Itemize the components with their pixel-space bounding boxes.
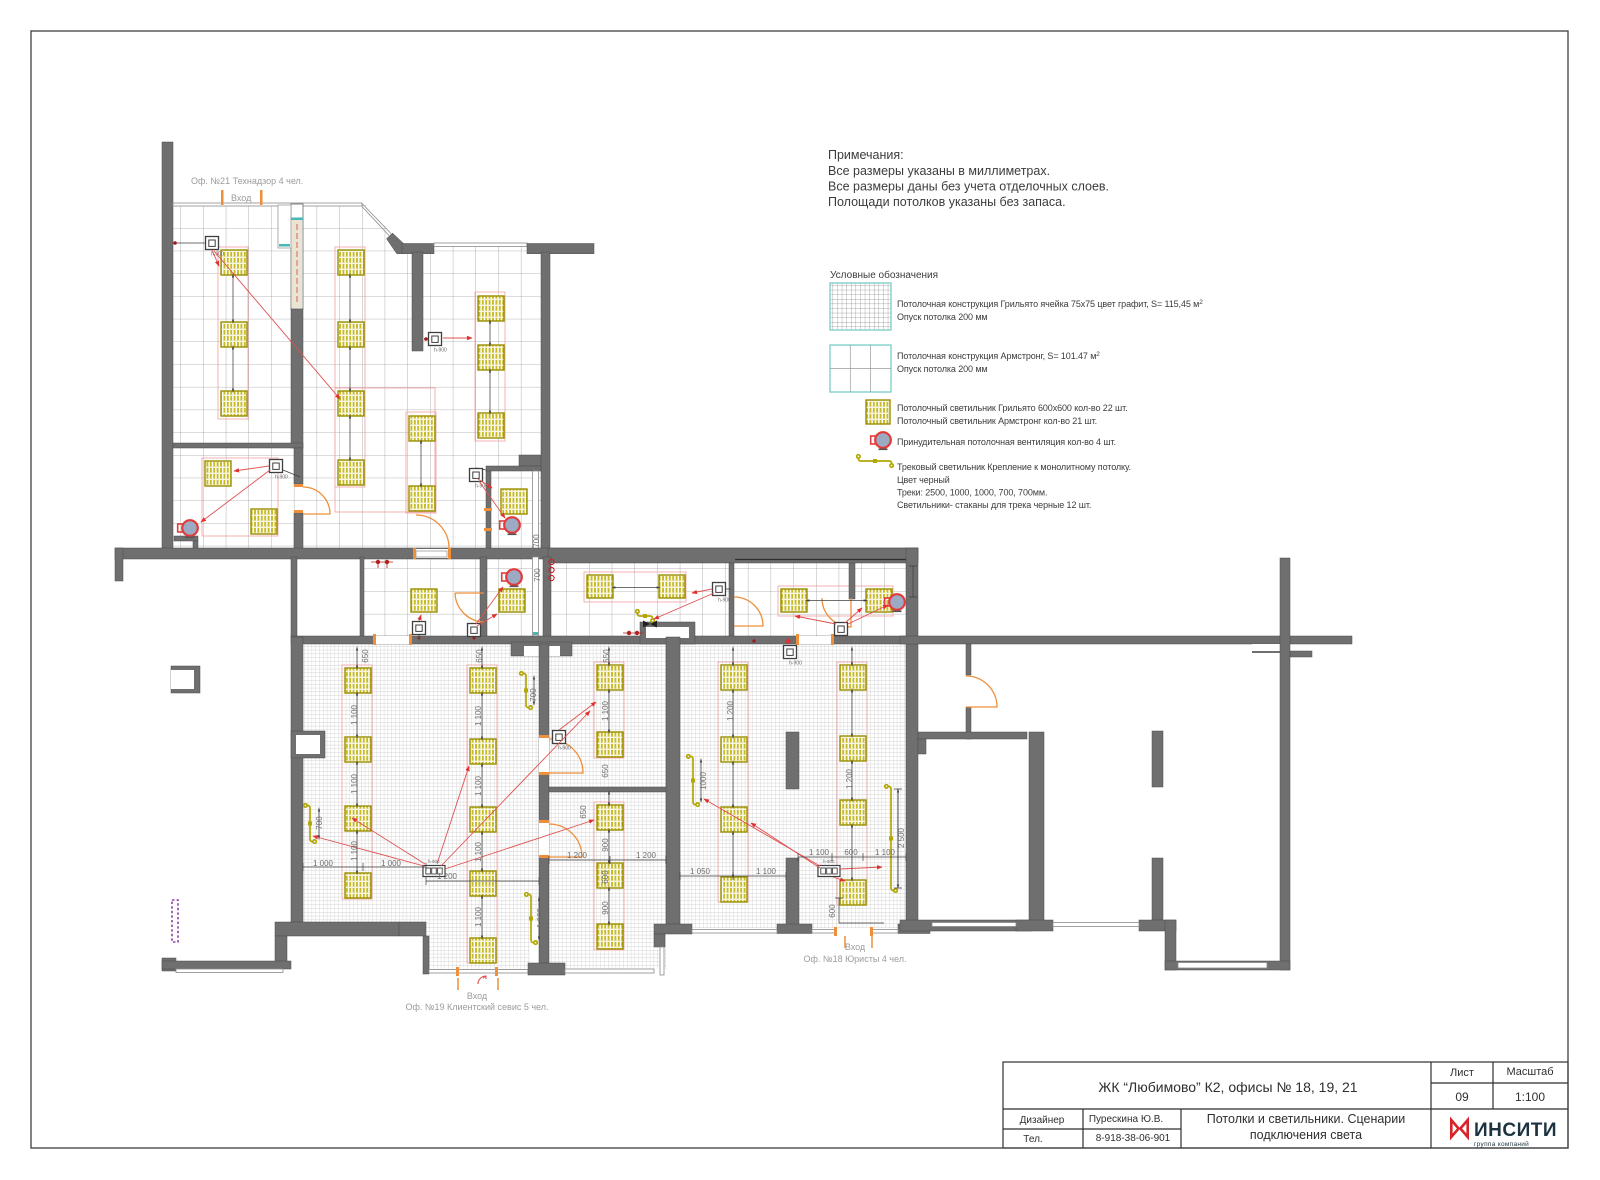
svg-text:900: 900 xyxy=(601,838,610,852)
svg-text:1 100: 1 100 xyxy=(350,840,359,861)
svg-text:1 100: 1 100 xyxy=(350,704,359,725)
svg-text:Принудительная потолочная вент: Принудительная потолочная вентиляция кол… xyxy=(897,437,1116,447)
svg-text:h-900: h-900 xyxy=(789,661,802,667)
svg-text:Вход: Вход xyxy=(231,193,252,203)
svg-text:550: 550 xyxy=(602,649,611,663)
svg-text:ЖК “Любимово” К2, офисы № 18,: ЖК “Любимово” К2, офисы № 18, 19, 21 xyxy=(1098,1079,1357,1095)
svg-text:h-900: h-900 xyxy=(434,348,447,354)
svg-text:Масштаб: Масштаб xyxy=(1506,1066,1553,1078)
svg-text:1 200: 1 200 xyxy=(845,768,854,789)
svg-text:1 100: 1 100 xyxy=(756,867,777,876)
svg-text:1 200: 1 200 xyxy=(567,851,588,860)
svg-text:Вход: Вход xyxy=(467,991,488,1001)
svg-text:h-900: h-900 xyxy=(840,638,853,644)
svg-text:h-900: h-900 xyxy=(418,637,431,643)
svg-text:Потолочная конструкция Грильят: Потолочная конструкция Грильято ячейка 7… xyxy=(897,299,1203,309)
svg-text:Оф. №21 Технадзор 4 чел.: Оф. №21 Технадзор 4 чел. xyxy=(191,176,303,186)
svg-text:1 100: 1 100 xyxy=(601,700,610,721)
svg-text:подключения света: подключения света xyxy=(1250,1128,1362,1142)
svg-text:Все размеры указаны в миллимет: Все размеры указаны в миллиметрах. xyxy=(828,164,1050,178)
svg-text:600: 600 xyxy=(844,848,858,857)
svg-text:Полощади потолков указаны без: Полощади потолков указаны без запаса. xyxy=(828,195,1066,209)
svg-text:h-900: h-900 xyxy=(558,746,571,752)
svg-text:Цвет черный: Цвет черный xyxy=(897,475,950,485)
svg-text:8-918-38-06-901: 8-918-38-06-901 xyxy=(1096,1133,1171,1144)
svg-text:700: 700 xyxy=(529,688,538,702)
svg-text:ИНСИТИ: ИНСИТИ xyxy=(1474,1120,1557,1141)
svg-text:1 100: 1 100 xyxy=(474,906,483,927)
svg-text:700: 700 xyxy=(909,575,918,589)
svg-text:h-900: h-900 xyxy=(275,475,288,481)
svg-text:Потолки и светильники. Сценари: Потолки и светильники. Сценарии xyxy=(1207,1112,1405,1126)
svg-text:Оф. №18 Юристы 4 чел.: Оф. №18 Юристы 4 чел. xyxy=(804,954,907,964)
svg-text:Вход: Вход xyxy=(845,942,866,952)
svg-text:1 100: 1 100 xyxy=(474,775,483,796)
svg-text:1 200: 1 200 xyxy=(437,872,458,881)
svg-text:650: 650 xyxy=(475,649,484,663)
svg-text:600: 600 xyxy=(828,904,837,918)
svg-text:Лист: Лист xyxy=(1450,1067,1474,1079)
svg-text:1 100: 1 100 xyxy=(350,773,359,794)
svg-text:1 100: 1 100 xyxy=(875,848,896,857)
svg-text:Опуск потолка 200 мм: Опуск потолка 200 мм xyxy=(897,364,988,374)
svg-text:650: 650 xyxy=(361,649,370,663)
svg-text:Потолочный светильник Армстрон: Потолочный светильник Армстронг кол-во 2… xyxy=(897,416,1097,426)
svg-text:h-900: h-900 xyxy=(718,598,731,604)
svg-text:Треки: 2500, 1000, 1000, 700,: Треки: 2500, 1000, 1000, 700, 700мм. xyxy=(897,488,1047,498)
svg-text:Примечания:: Примечания: xyxy=(828,148,904,162)
svg-text:650: 650 xyxy=(601,764,610,778)
svg-text:Светильники- стаканы для трека: Светильники- стаканы для трека черные 12… xyxy=(897,500,1091,510)
svg-text:1:100: 1:100 xyxy=(1515,1090,1545,1104)
svg-text:Оф. №19 Клиентский севис 5 чел: Оф. №19 Клиентский севис 5 чел. xyxy=(405,1002,548,1012)
svg-text:Условные обозначения: Условные обозначения xyxy=(830,269,938,281)
svg-text:Потолочный светильник Грильято: Потолочный светильник Грильято 600х600 к… xyxy=(897,403,1128,413)
svg-text:700: 700 xyxy=(532,534,541,548)
svg-text:h-900: h-900 xyxy=(823,859,835,864)
svg-text:700: 700 xyxy=(315,816,324,830)
svg-text:Тел.: Тел. xyxy=(1023,1134,1042,1145)
svg-text:группа компаний: группа компаний xyxy=(1474,1140,1529,1148)
svg-text:09: 09 xyxy=(1455,1090,1469,1104)
svg-text:1 000: 1 000 xyxy=(536,907,545,928)
svg-text:700: 700 xyxy=(533,568,542,582)
svg-text:Потолочная конструкция Армстро: Потолочная конструкция Армстронг, S= 101… xyxy=(897,351,1100,361)
svg-text:1 200: 1 200 xyxy=(636,851,657,860)
svg-text:Все размеры даны без учета отд: Все размеры даны без учета отделочных сл… xyxy=(828,180,1109,194)
svg-text:1 100: 1 100 xyxy=(474,841,483,862)
svg-text:h-900: h-900 xyxy=(473,639,486,645)
svg-text:Дизайнер: Дизайнер xyxy=(1020,1115,1065,1126)
svg-text:600: 600 xyxy=(601,870,610,884)
svg-text:1 050: 1 050 xyxy=(690,867,711,876)
svg-text:1 100: 1 100 xyxy=(474,705,483,726)
svg-text:Опуск потолка 200 мм: Опуск потолка 200 мм xyxy=(897,312,988,322)
svg-text:Трековый светильник Крепление: Трековый светильник Крепление к монолитн… xyxy=(897,462,1131,472)
svg-text:1 100: 1 100 xyxy=(809,848,830,857)
svg-text:1000: 1000 xyxy=(699,772,708,790)
svg-text:650: 650 xyxy=(579,805,588,819)
svg-text:1 200: 1 200 xyxy=(726,700,735,721)
svg-text:900: 900 xyxy=(601,901,610,915)
svg-text:Пурескина Ю.В.: Пурескина Ю.В. xyxy=(1089,1114,1163,1125)
